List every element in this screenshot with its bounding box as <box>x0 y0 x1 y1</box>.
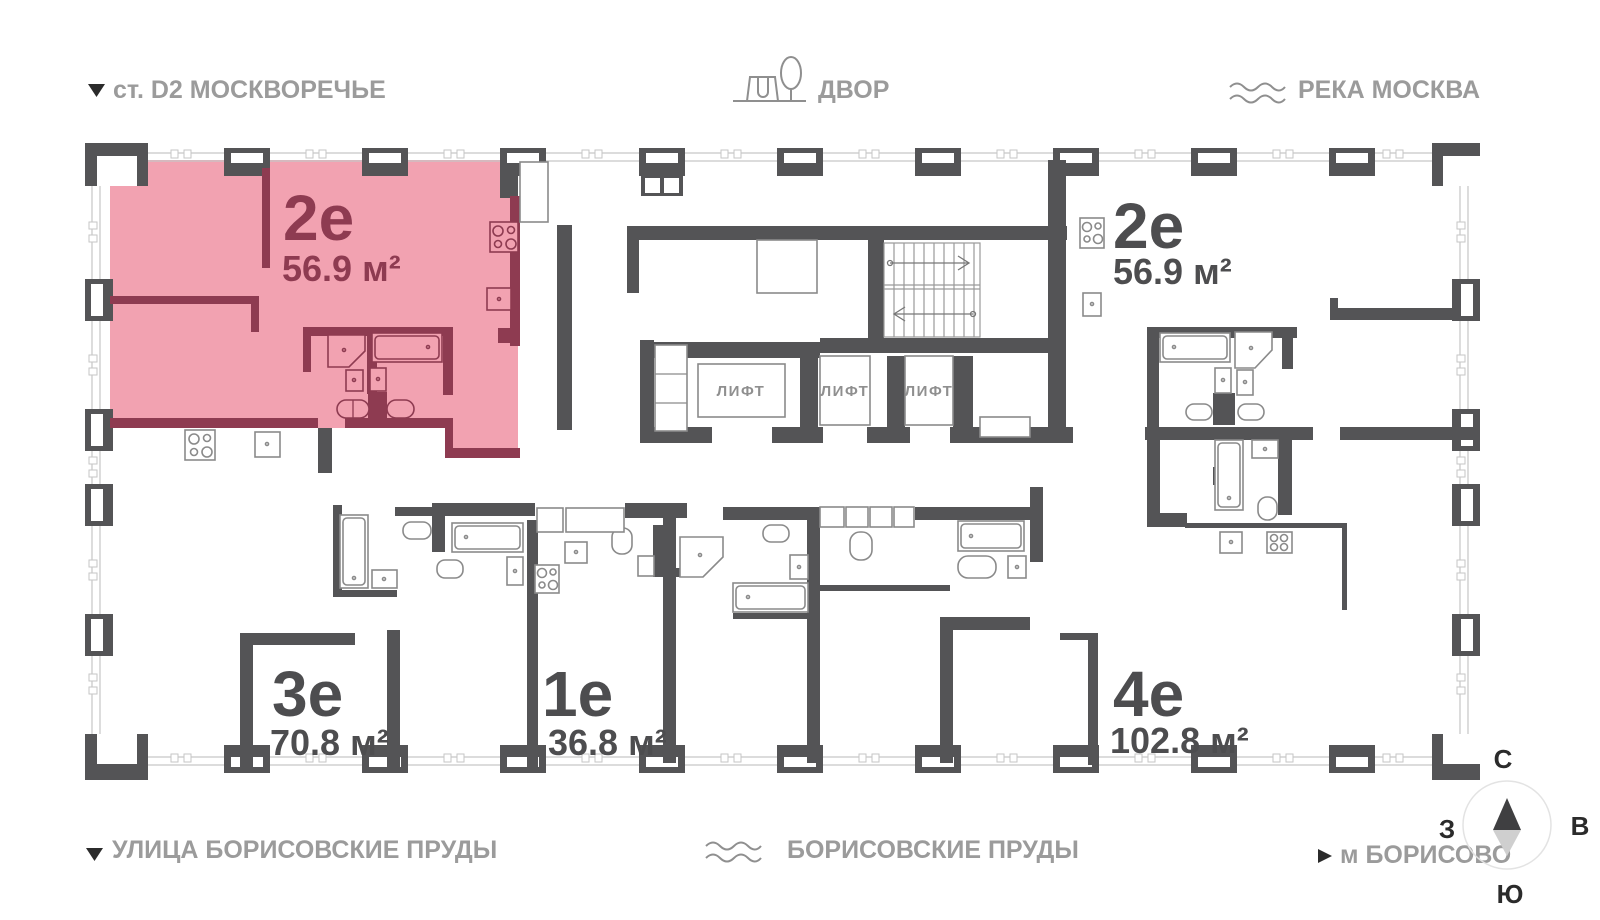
bathtub-icon <box>1160 333 1230 362</box>
sink-icon <box>372 570 397 588</box>
utility-room <box>757 240 817 293</box>
stairs-down-arrow-icon <box>894 307 976 321</box>
stove-icon <box>1080 218 1104 248</box>
floor-plan-canvas: ЛИФТ ЛИФТ ЛИФТ <box>0 0 1600 920</box>
floor-plan-page: ЛИФТ ЛИФТ ЛИФТ <box>0 0 1600 920</box>
direction-triangle-icon <box>86 848 103 861</box>
washer-icon <box>337 400 369 418</box>
legend-label: РЕКА МОСКВА <box>1298 76 1480 104</box>
apartment-2e-right-label[interactable]: 2е 56.9 м² <box>1113 190 1232 292</box>
bathtub-icon <box>340 515 368 588</box>
sink-icon <box>1220 532 1242 553</box>
apartment-area: 102.8 м² <box>1110 720 1249 761</box>
shower-icon <box>680 537 723 577</box>
elevator-label: ЛИФТ <box>717 383 766 400</box>
stairs <box>884 243 980 337</box>
shower-icon <box>1235 332 1272 368</box>
sink-icon <box>1237 370 1253 395</box>
toilet-icon <box>763 525 789 542</box>
vent-shaft <box>820 507 844 527</box>
direction-triangle-icon <box>88 84 105 97</box>
apartment-type: 2е <box>283 182 354 254</box>
washer-icon <box>1238 404 1264 420</box>
legend-bottom-left: УЛИЦА БОРИСОВСКИЕ ПРУДЫ <box>86 836 497 864</box>
stove-icon <box>535 565 559 593</box>
toilet-icon <box>850 532 872 560</box>
sink-icon <box>346 370 363 391</box>
elevator-label: ЛИФТ <box>821 383 870 400</box>
compass-needle-north <box>1493 798 1521 830</box>
stove-icon <box>185 430 215 460</box>
legend-bottom-center: БОРИСОВСКИЕ ПРУДЫ <box>706 836 1079 864</box>
sink-icon <box>487 288 511 310</box>
apartment-type: 3е <box>272 658 343 730</box>
vent-shaft <box>520 162 548 222</box>
legend-label: УЛИЦА БОРИСОВСКИЕ ПРУДЫ <box>112 836 497 864</box>
compass-south-label: Ю <box>1497 879 1524 909</box>
sink-icon <box>790 555 808 579</box>
playground-icon <box>733 57 806 101</box>
washer-icon <box>1186 404 1212 420</box>
bathtub-icon <box>372 333 442 362</box>
legend-label: ДВОР <box>818 76 889 104</box>
legend-top-left: ст. D2 МОСКВОРЕЧЬЕ <box>88 76 386 104</box>
utility-box <box>980 417 1030 437</box>
apartment-type: 1е <box>542 658 613 730</box>
bathtub-icon <box>958 521 1024 551</box>
vent-shaft <box>537 508 563 532</box>
stairs-up-arrow-icon <box>888 256 970 270</box>
toilet-icon <box>1258 497 1277 520</box>
apartment-1e-label[interactable]: 1е 36.8 м² <box>542 658 667 763</box>
toilet-icon <box>403 522 431 539</box>
sink-icon <box>565 542 587 563</box>
legend-label: м БОРИСОВО <box>1340 841 1511 869</box>
lobby-shaft <box>655 345 687 431</box>
bathtub-icon <box>452 523 523 552</box>
vent-shaft <box>870 507 892 527</box>
stove-icon <box>1267 532 1292 553</box>
compass-east-label: В <box>1571 811 1590 841</box>
river-waves-icon <box>1230 84 1285 103</box>
compass-west-label: З <box>1439 814 1455 844</box>
toilet-icon <box>437 560 463 578</box>
sink-icon <box>1083 293 1101 316</box>
sink-icon <box>1252 440 1278 458</box>
sink-icon <box>1008 556 1026 578</box>
legend-label: ст. D2 МОСКВОРЕЧЬЕ <box>113 76 386 104</box>
bathtub-icon <box>1215 440 1243 510</box>
elevator-bank: ЛИФТ ЛИФТ ЛИФТ <box>698 356 953 425</box>
legend-bottom-right: м БОРИСОВО <box>1318 841 1511 869</box>
metro-arrow-icon <box>1318 849 1332 863</box>
compass-north-label: С <box>1494 744 1513 774</box>
bathtub-icon <box>733 583 808 612</box>
apartment-area: 36.8 м² <box>548 722 667 763</box>
sink-icon <box>638 556 654 576</box>
elevator-label: ЛИФТ <box>905 383 954 400</box>
shower-icon <box>958 556 996 578</box>
vent-shaft <box>894 507 914 527</box>
sink-icon <box>255 432 280 457</box>
legend-top-center: ДВОР <box>733 57 889 104</box>
vent-shaft <box>566 508 624 532</box>
apartment-area: 70.8 м² <box>270 722 389 763</box>
sink-icon <box>1215 368 1231 393</box>
apartment-4e-label[interactable]: 4е 102.8 м² <box>1110 658 1249 761</box>
legend-top-right: РЕКА МОСКВА <box>1230 76 1480 104</box>
sink-icon <box>507 557 523 585</box>
apartment-area: 56.9 м² <box>282 248 401 289</box>
apartment-3e-label[interactable]: 3е 70.8 м² <box>270 658 389 763</box>
sink-icon <box>370 368 386 391</box>
washer-icon <box>387 400 414 418</box>
vent-shaft <box>846 507 868 527</box>
pond-waves-icon <box>706 843 761 862</box>
apartment-area: 56.9 м² <box>1113 251 1232 292</box>
stove-icon <box>490 222 518 252</box>
legend-label: БОРИСОВСКИЕ ПРУДЫ <box>787 836 1079 864</box>
